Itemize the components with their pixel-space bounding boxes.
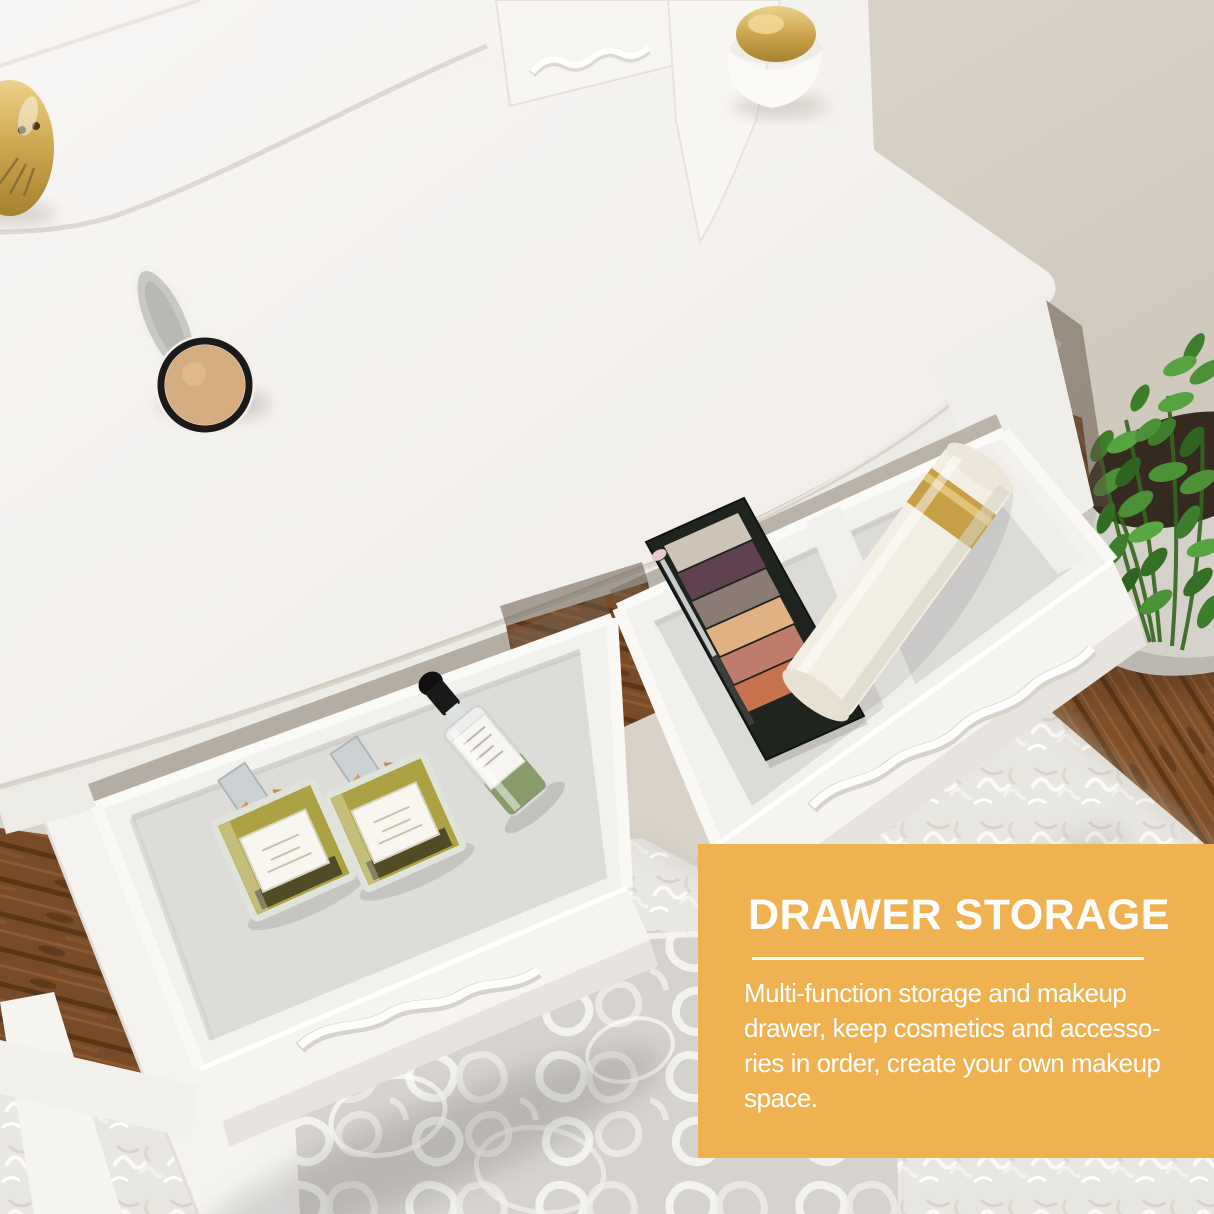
panel-title: DRAWER STORAGE	[748, 894, 1170, 937]
gold-lid	[736, 6, 816, 62]
info-panel: DRAWER STORAGE Multi-function storage an…	[698, 844, 1214, 1158]
powder-pan	[165, 345, 245, 425]
panel-body: Multi-function storage and makeup drawer…	[744, 976, 1174, 1116]
product-image: DRAWER STORAGE Multi-function storage an…	[0, 0, 1214, 1214]
panel-divider	[752, 957, 1144, 960]
